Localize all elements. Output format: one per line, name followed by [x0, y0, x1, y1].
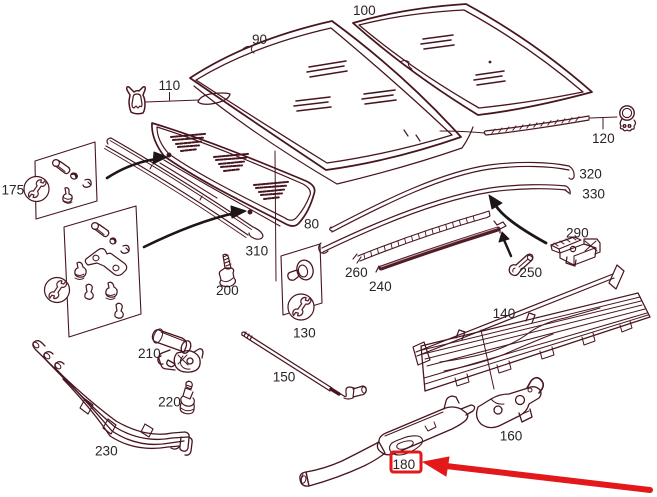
svg-text:110: 110 — [159, 78, 181, 93]
svg-text:230: 230 — [95, 443, 118, 458]
svg-text:180: 180 — [393, 457, 416, 472]
svg-text:140: 140 — [493, 306, 516, 321]
svg-text:310: 310 — [246, 243, 269, 258]
svg-text:120: 120 — [592, 131, 615, 146]
svg-text:250: 250 — [519, 265, 542, 280]
svg-text:80: 80 — [304, 217, 320, 232]
svg-text:200: 200 — [216, 283, 239, 298]
svg-text:220: 220 — [158, 395, 181, 410]
svg-text:160: 160 — [500, 428, 523, 443]
svg-text:130: 130 — [293, 325, 316, 340]
svg-text:260: 260 — [345, 265, 368, 280]
svg-text:100: 100 — [353, 3, 376, 18]
svg-text:175: 175 — [2, 182, 25, 197]
svg-text:150: 150 — [273, 369, 296, 384]
svg-text:290: 290 — [566, 226, 589, 241]
svg-text:320: 320 — [579, 167, 602, 182]
svg-text:90: 90 — [252, 32, 268, 47]
svg-text:330: 330 — [582, 187, 605, 202]
svg-text:240: 240 — [369, 279, 392, 294]
svg-text:210: 210 — [138, 346, 161, 361]
